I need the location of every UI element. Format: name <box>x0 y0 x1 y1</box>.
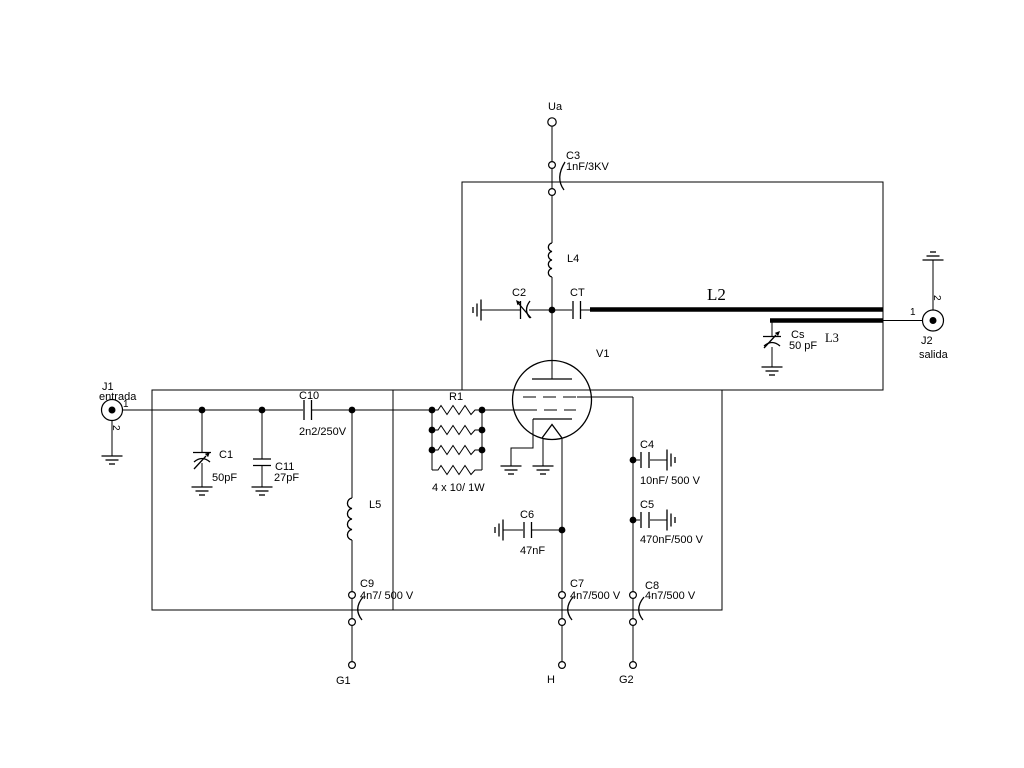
c7-terminal-bottom <box>559 619 566 626</box>
capacitor-cs: Cs 50 pF <box>762 323 818 376</box>
junction-r1-f <box>479 447 486 454</box>
c4-value: 10nF/ 500 V <box>640 475 701 487</box>
c6-value: 47nF <box>520 545 545 557</box>
capacitor-c4: C4 10nF/ 500 V <box>630 439 701 487</box>
ground-icon-cathode <box>501 466 522 474</box>
supply-terminal-ua: Ua <box>548 101 563 162</box>
c3-value: 1nF/3KV <box>566 161 609 173</box>
r1-value: 4 x 10/ 1W <box>432 482 485 494</box>
g2-label: G2 <box>619 674 634 686</box>
anode-compartment-box <box>462 182 883 390</box>
c4-ref: C4 <box>640 439 654 451</box>
l4-label: L4 <box>567 253 579 265</box>
l5-coil-icon <box>347 498 352 540</box>
cs-value: 50 pF <box>789 340 817 352</box>
inductor-l5: L5 <box>347 410 381 592</box>
c3-terminal-bottom <box>549 189 556 196</box>
g1-label: G1 <box>336 675 351 687</box>
j2-center-pin <box>930 317 937 324</box>
v1-filament <box>542 425 562 439</box>
r1-element-2 <box>432 426 482 435</box>
inductor-l2: L2 <box>590 285 883 310</box>
c9-value: 4n7/ 500 V <box>360 590 414 602</box>
capacitor-c6: C6 47nF <box>495 509 565 557</box>
l4-coil-icon <box>548 243 552 277</box>
ground-icon-cs <box>762 367 783 375</box>
ground-icon-c1 <box>192 487 213 495</box>
c1-value: 50pF <box>212 472 237 484</box>
c8-feedthrough-arc-icon <box>639 597 644 620</box>
junction-r1-e <box>429 447 436 454</box>
j2-ref: J2 <box>921 335 933 347</box>
j1-center-pin <box>109 407 116 414</box>
c10-ref: C10 <box>299 390 319 402</box>
schematic-canvas: Ua C3 1nF/3KV L4 C2 CT <box>0 0 1024 768</box>
inductor-l4: L4 <box>548 243 579 310</box>
junction-r1-a <box>429 407 436 414</box>
capacitor-c8: C8 4n7/500 V G2 <box>619 580 696 686</box>
c1-arrow-shaft <box>194 456 206 469</box>
input-compartment-box <box>152 390 722 610</box>
ground-icon-j1 <box>102 456 123 464</box>
ground-icon-c6 <box>495 520 503 541</box>
capacitor-c10: C10 2n2/250V <box>299 390 432 438</box>
capacitor-c3: C3 1nF/3KV <box>549 150 610 243</box>
r1-ref: R1 <box>449 391 463 403</box>
h-label: H <box>547 674 555 686</box>
c5-ref: C5 <box>640 499 654 511</box>
v1-ref: V1 <box>596 348 609 360</box>
ground-icon-c4 <box>667 450 675 471</box>
connector-j1: J1 entrada 1 2 <box>99 381 303 464</box>
c9-ref: C9 <box>360 578 374 590</box>
j2-pin1-label: 1 <box>910 307 916 318</box>
junction-c6 <box>559 527 566 534</box>
c8-terminal-bottom <box>630 619 637 626</box>
c9-terminal-bottom <box>349 619 356 626</box>
c8-value: 4n7/500 V <box>645 590 696 602</box>
junction-r1-d <box>479 427 486 434</box>
resistor-r1: R1 4 x 10/ 1W <box>429 391 524 494</box>
shield-boxes <box>152 182 883 610</box>
c7-value: 4n7/500 V <box>570 590 621 602</box>
c7-ref: C7 <box>570 578 584 590</box>
capacitor-c2: C2 <box>473 287 572 379</box>
c7-terminal-top <box>559 592 566 599</box>
junction-r1-c <box>429 427 436 434</box>
l3-label: L3 <box>825 331 839 345</box>
capacitor-c5: C5 470nF/500 V <box>630 499 704 546</box>
c10-value: 2n2/250V <box>299 426 347 438</box>
g1-terminal-icon <box>349 662 356 669</box>
ua-label: Ua <box>548 101 563 113</box>
ground-icon-c11 <box>252 487 273 495</box>
c8-terminal-top <box>630 592 637 599</box>
r1-element-3 <box>432 446 482 455</box>
g2-terminal-icon <box>630 662 637 669</box>
capacitor-ct: CT <box>570 287 591 319</box>
capacitor-c7: C7 4n7/500 V H <box>547 578 621 686</box>
ground-icon-filament <box>533 466 554 474</box>
r1-element-1 <box>432 406 482 415</box>
c6-ref: C6 <box>520 509 534 521</box>
c2-ref: C2 <box>512 287 526 299</box>
l5-label: L5 <box>369 499 381 511</box>
c3-feedthrough-arc-icon <box>560 162 565 190</box>
ground-icon-c5 <box>667 510 675 531</box>
c9-terminal-top <box>349 592 356 599</box>
c11-value: 27pF <box>274 472 299 484</box>
c5-value: 470nF/500 V <box>640 534 704 546</box>
j2-name: salida <box>919 349 949 361</box>
ua-terminal-icon <box>548 118 556 126</box>
capacitor-c1: C1 50pF <box>192 407 238 495</box>
connector-j2: 1 2 J2 salida <box>910 252 949 361</box>
capacitor-c11: C11 27pF <box>252 407 300 495</box>
j1-pin1-label: 1 <box>123 399 129 410</box>
capacitor-c9: C9 4n7/ 500 V G1 <box>336 578 414 687</box>
c3-terminal-top <box>549 162 556 169</box>
l2-label: L2 <box>707 285 726 304</box>
h-terminal-icon <box>559 662 566 669</box>
c1-ref: C1 <box>219 449 233 461</box>
r1-element-4 <box>432 466 482 475</box>
ct-ref: CT <box>570 287 585 299</box>
ground-icon-j2 <box>923 252 944 260</box>
ground-icon-c2 <box>473 300 481 321</box>
